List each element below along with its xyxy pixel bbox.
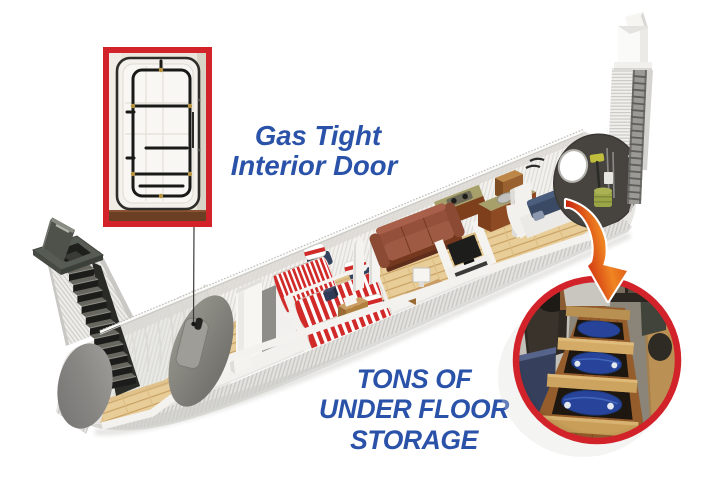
svg-text:Interior Door: Interior Door xyxy=(231,150,399,181)
svg-text:Gas Tight: Gas Tight xyxy=(255,120,383,151)
svg-text:STORAGE: STORAGE xyxy=(350,425,479,455)
svg-text:UNDER FLOOR: UNDER FLOOR xyxy=(319,394,509,424)
svg-text:TONS OF: TONS OF xyxy=(357,364,473,394)
